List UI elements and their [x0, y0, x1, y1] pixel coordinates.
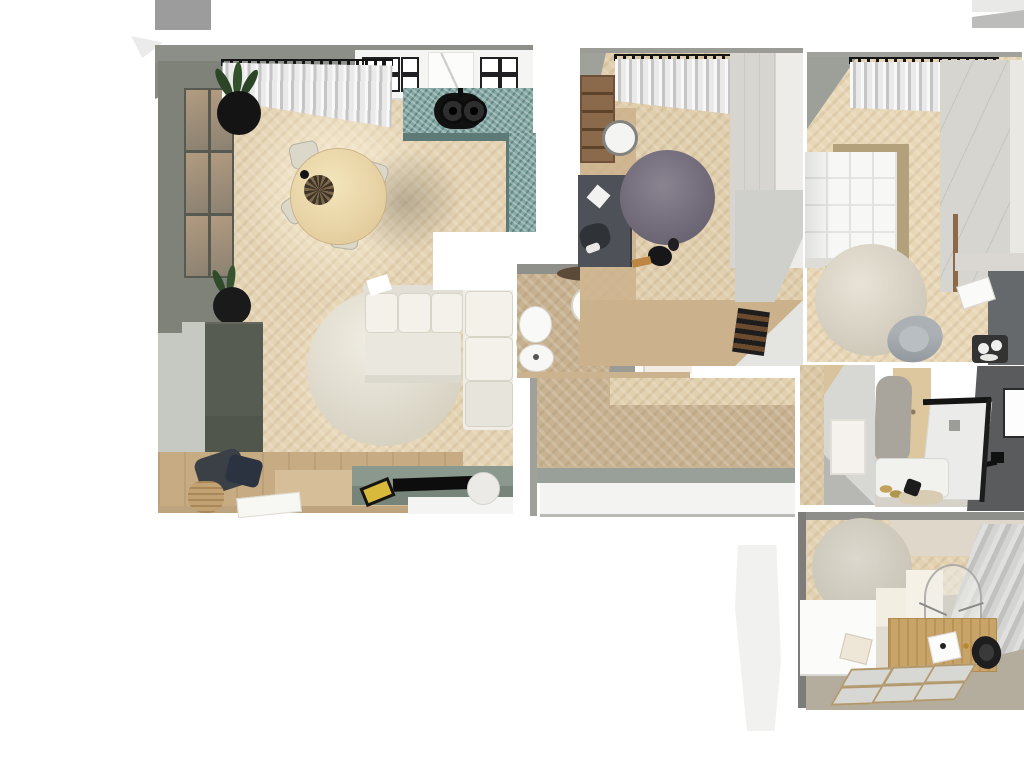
- study-top-wall: [798, 512, 1024, 520]
- white-cabinet-front: [408, 497, 520, 514]
- window-pane: [186, 90, 208, 150]
- tall-cabinet-side: [182, 322, 207, 452]
- sofa-seat: [365, 333, 461, 378]
- room-living-kitchen: [155, 45, 533, 520]
- exterior-balcony-block: [155, 0, 211, 30]
- floorplan-render: [0, 0, 1024, 768]
- chaise-cushion: [465, 291, 513, 337]
- corridor-door: [830, 419, 866, 475]
- cup: [978, 343, 989, 354]
- wall-clock: [602, 120, 638, 156]
- room-bathroom-shower: [875, 366, 1024, 511]
- potted-plant-mid: [213, 287, 251, 325]
- armchair-seat: [899, 326, 929, 352]
- window-pane: [186, 153, 208, 213]
- cup: [991, 340, 1002, 351]
- chaise-cushion: [465, 337, 513, 381]
- sideboard-front: [540, 483, 795, 517]
- room-study: [798, 510, 1024, 710]
- centerpiece-vase: [300, 170, 309, 179]
- shower-valve: [991, 452, 1004, 463]
- small-black-item: [668, 238, 679, 251]
- corridor-segment: [800, 363, 875, 505]
- mirror: [1003, 388, 1024, 438]
- exterior-wall-polygon: [735, 545, 781, 731]
- purple-round-rug: [620, 150, 715, 245]
- kitchen-counter-edge: [403, 133, 509, 141]
- sofa-cushion: [398, 293, 431, 333]
- window-pane: [186, 216, 208, 276]
- room-bedroom: [805, 52, 1024, 365]
- kitchen-counter-right: [506, 133, 536, 232]
- exterior-wedge-top: [972, 0, 1024, 12]
- chaise-cushion-low: [465, 381, 513, 427]
- towel: [873, 375, 912, 464]
- hallway-left-wall: [530, 378, 537, 516]
- oven-appliance: [480, 57, 500, 92]
- dish: [980, 354, 998, 361]
- inkwell: [940, 643, 946, 649]
- easel-board: [800, 600, 882, 676]
- oven-appliance: [401, 57, 419, 92]
- room-kids: [578, 48, 805, 370]
- bidet-drain: [533, 354, 539, 360]
- table-centerpiece: [304, 175, 334, 205]
- shoe-rack: [732, 308, 770, 356]
- sofa-cushion: [431, 293, 463, 333]
- oven-appliance: [500, 57, 518, 92]
- sofa-cushion: [365, 293, 398, 333]
- sideboard-top: [537, 468, 795, 483]
- shower-drain: [949, 420, 960, 431]
- stool-seat: [979, 644, 994, 661]
- potted-plant-top: [217, 91, 261, 135]
- sink-faucet: [458, 88, 463, 97]
- wall-shelf: [955, 253, 1024, 271]
- sphere-lamp: [467, 472, 500, 505]
- woven-basket: [188, 481, 224, 513]
- window-pane: [211, 153, 233, 213]
- hallway-floor-light: [610, 378, 795, 405]
- sink-bowl-right: [461, 98, 487, 124]
- room-hallway: [530, 376, 795, 518]
- window-pane: [211, 216, 233, 276]
- toilet: [519, 306, 552, 343]
- tall-cabinet-front: [205, 322, 263, 456]
- sofa-front-edge: [365, 375, 461, 383]
